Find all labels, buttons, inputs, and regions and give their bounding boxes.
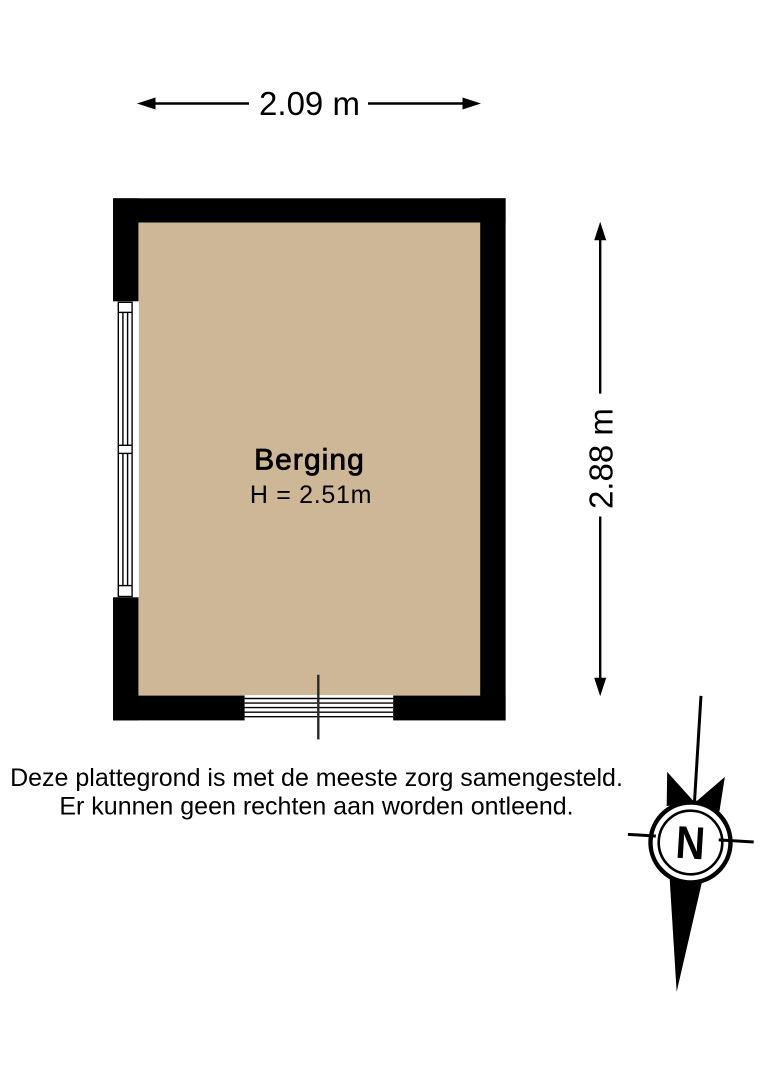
svg-text:H = 2.51m: H = 2.51m [250, 481, 372, 509]
svg-text:Deze plattegrond is met de mee: Deze plattegrond is met de meeste zorg s… [10, 764, 623, 792]
svg-text:2.09 m: 2.09 m [259, 85, 360, 122]
svg-text:N: N [674, 817, 706, 870]
svg-text:Berging: Berging [254, 443, 365, 476]
svg-text:2.88 m: 2.88 m [582, 408, 619, 509]
svg-text:Er kunnen geen rechten aan wor: Er kunnen geen rechten aan worden ontlee… [59, 792, 573, 820]
